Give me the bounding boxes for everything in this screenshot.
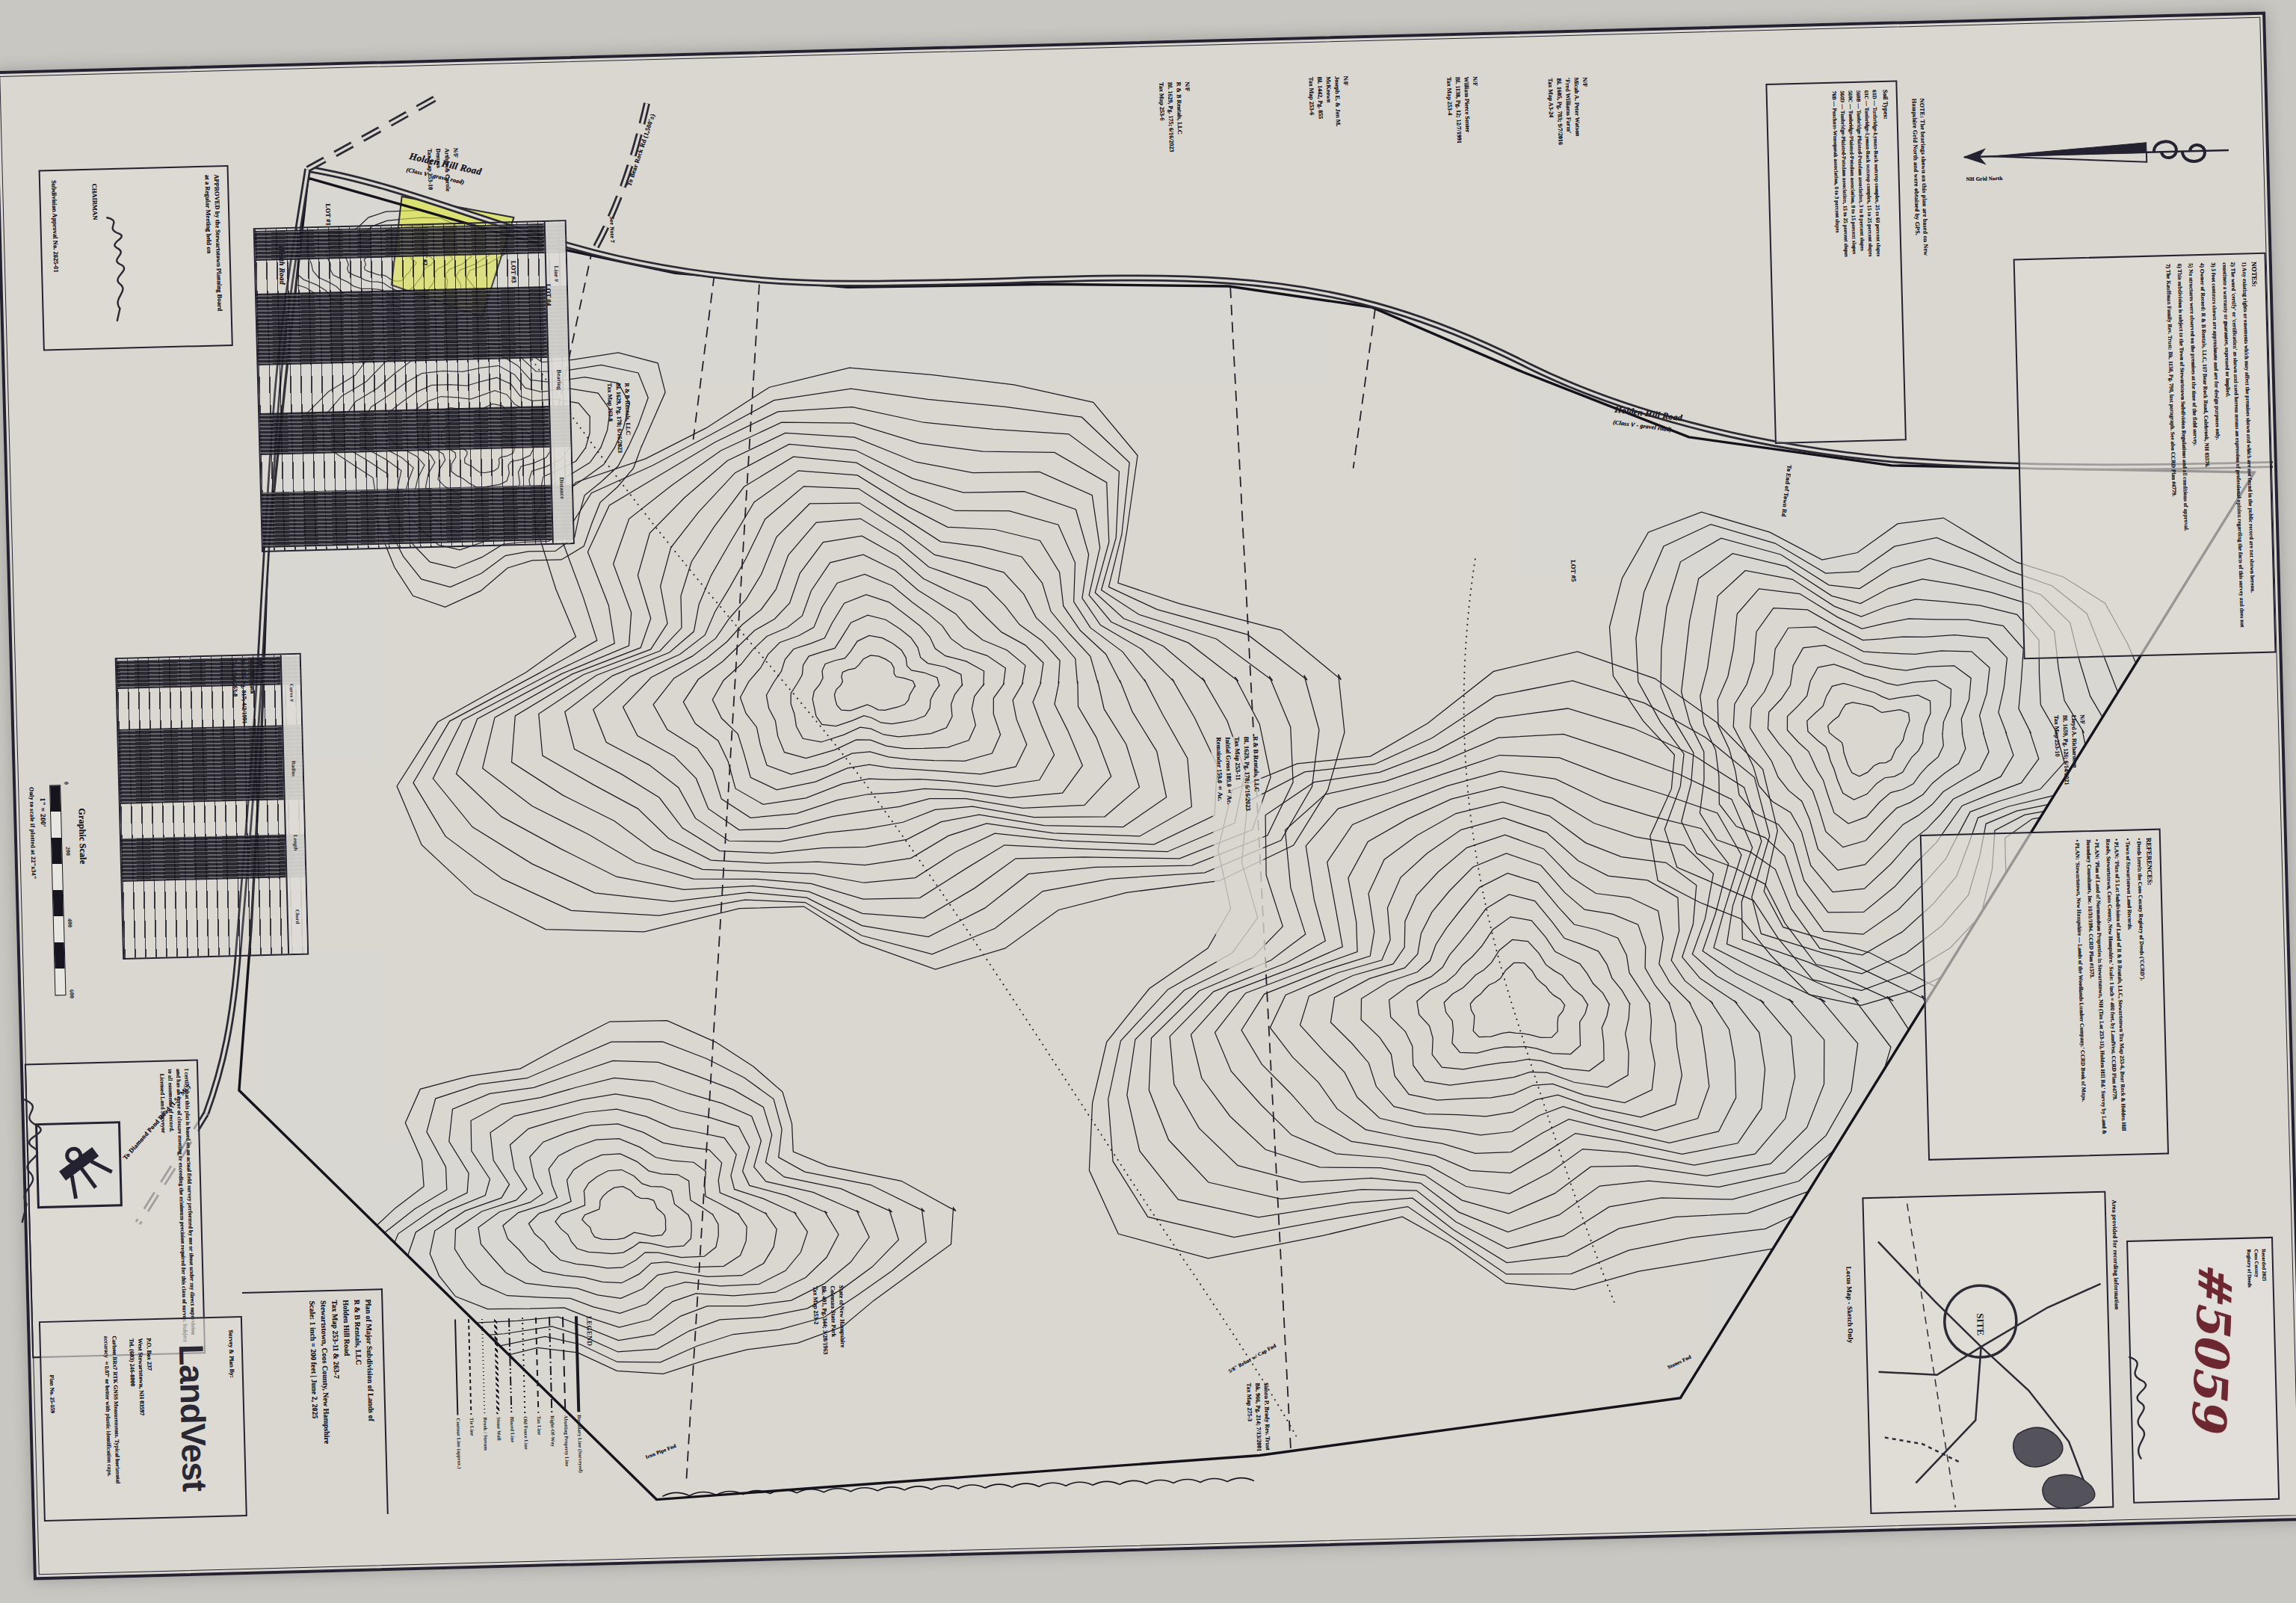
marker-iron-pipe: Iron Pipe Fnd [645,1443,677,1461]
landvest-logo: LandVest [170,1326,215,1509]
legend-item-label: Blazed Line [509,1417,515,1443]
legend-line-sample [575,1316,580,1412]
abutter-senter: N/FWilliam Pierce SenterBl. 1138, Pg. 12… [1440,76,1484,286]
legend-item-label: Right-Of-Way [549,1415,555,1447]
locus-map-sketch: SITE [1863,1193,2112,1513]
curve-table-header: Radius [290,761,297,776]
soils-rows: 61D — Tunbridge-Lyman-Rock outcrop compl… [1778,90,1887,430]
legend-item-label: Brook / Stream [482,1417,488,1450]
approval-number: Subdivision Approval No. 2025-01 [49,180,63,341]
abutter-brady-trust: Simon P. Brady Rev. TrustBk. 966, Pg. 21… [1239,1383,1274,1533]
recording-box: Recorded 2025Coos CountyRegistry of Deed… [2126,1237,2280,1504]
abutter-watson: N/FMicah A. Peter Watson'Fred Williams F… [1541,77,1595,303]
scale-tick: 0 [63,782,70,785]
legend-line-sample [522,1318,526,1413]
abutter-mckeown: N/FJoseph E. & Jen M.McKeownBl. 1442, Pg… [1302,76,1355,287]
abutter-richardson: N/FLloyd A. RichardsonBl. 1659, Pg. 126;… [2048,714,2091,880]
legend-item-label: Old Fence Line [522,1416,528,1450]
legend-line-sample [454,1320,458,1415]
registrar-signature [2116,1353,2156,1466]
scale-tick: 600 [68,989,75,998]
recording-number: #5059 [2179,1261,2243,1480]
lot-label-5: LOT #5 [1569,560,1578,612]
legend-item: Boundary Line (Surveyed) [571,1316,587,1504]
road-label-bear-rock: To Bear Rock Rd (1,500'±) [625,113,657,188]
road-label-holden-2: Holden Hill Road (Class V - gravel road) [1612,404,1683,436]
recording-stamp: Recorded 2025Coos CountyRegistry of Deed… [2245,1249,2273,1474]
legend-line-sample [549,1317,553,1412]
survey-by-caption: Survey & Plan By: [226,1329,240,1501]
line-table: Line #BearingDistance [253,220,575,552]
scanned-survey-plan-page: APPROVED by the Stewartstown Planning Bo… [0,0,2296,1603]
road-label-town-end: To End of Town Rd [1774,465,1793,569]
curve-table-header: Length [292,835,299,851]
legend-item: Abutting Property Line [558,1317,573,1505]
curve-table-header: Curve # [288,684,295,702]
legend-title: LEGEND [585,1316,598,1504]
lot-label-2: LOT #2 [420,244,430,296]
plan-number: Plan No. 25-059 [48,1375,60,1510]
curve-table: Curve #RadiusLengthChord [115,653,309,960]
legend-item: Brook / Stream [477,1318,493,1507]
scale-tick: 400 [67,918,73,927]
legend-items: Boundary Line (Surveyed) Abutting Proper… [450,1316,587,1508]
line-table-header: Line # [553,265,561,282]
plan-title-block: Plan of Major Subdivision of Lands ofR &… [242,1288,389,1518]
scale-ratio: 1" = 200' [38,798,51,918]
legend-item-label: Stone Wall [496,1417,502,1441]
scale-title: Graphic Scale [75,808,91,957]
legend-item-label: Tax Line [536,1416,541,1436]
graphic-scale: Only to scale if plotted at 22"x34" 1" =… [26,755,115,1026]
legend-item: Contour Line (approx.) [450,1319,466,1507]
surveyor-certification-box: I certify that this plat is based on an … [25,1059,206,1358]
legend-item-label: Contour Line (approx.) [455,1418,462,1468]
landvest-block: Survey & Plan By: LandVest P.O. Box 237W… [39,1316,247,1522]
references-list: REFERENCES: • Deeds herein the Coos Coun… [1929,838,2161,1146]
soil-types-box: Soil Types: 61D — Tunbridge-Lyman-Rock o… [1765,80,1907,443]
chairman-label: CHAIRMAN [90,184,103,333]
legend-item: Stone Wall [490,1318,506,1507]
line-table-header: Bearing [555,369,563,389]
legend-item-label: Boundary Line (Surveyed) [576,1415,583,1473]
legend-item-label: Tie Line [469,1418,474,1436]
lot-label-4: LOT #4 [544,284,554,336]
notes-box: NOTES: 1) Any existing rights or easemen… [2013,253,2277,660]
grid-north-note: NOTE: The bearings shown on this plan ar… [1903,99,1930,271]
marker-rebar: 5/8" Rebar w/ Cap Fnd [1227,1342,1277,1374]
plan-title-lines: Plan of Major Subdivision of Lands ofR &… [306,1299,379,1508]
marker-stones: Stones Fnd [1667,1354,1693,1371]
landvest-address: P.O. Box 237West Stewartstown, NH 03597T… [127,1338,157,1499]
equipment-note: Carlson BRx7 RTK GNSS Measurements. Typi… [102,1335,123,1504]
lot-label-1: LOT #1 [324,203,333,256]
notes-list: NOTES: 1) Any existing rights or easemen… [2022,262,2268,645]
curve-table-headers: Curve #RadiusLengthChord [280,655,307,954]
line-table-header: Distance [558,477,566,499]
legend-item: Tie Line [463,1319,479,1507]
legend-line-sample [468,1319,472,1415]
surveyor-signature [0,1093,53,1238]
lot-label-3: LOT #3 [509,261,519,313]
legend-item-label: Abutting Property Line [563,1415,570,1467]
north-arrow-label: NH Grid North [1966,176,2003,183]
legend-item: Blazed Line [504,1318,519,1506]
see-note-annotation: See Note 7 [608,216,617,283]
abutter-coleman-state-park: State of New HampshireColeman State Park… [806,1285,850,1465]
locus-caption: Locus Map - Sketch Only [1844,1267,1857,1446]
abutter-ronald-heath: N/FRonald HeathBk. 775, Pg. 817; 4/2/199… [226,658,268,815]
planning-board-approval-box: APPROVED by the Stewartstown Planning Bo… [39,165,233,351]
parcel-rnb-263-8: R & B Rentals, LLCBl. 1629, Pg. 178; 6/1… [599,383,635,548]
parcel-owner-block: R & B Rentals, LLCBl. 1629, Pg. 178; 6/1… [1211,736,1266,969]
scale-tick: 200 [64,847,71,856]
plan-sheet: APPROVED by the Stewartstown Planning Bo… [0,12,2296,1581]
abutter-rnb-253-6: N/FR & B Rentals, LLCBl. 1629, Pg. 175; … [1152,81,1197,306]
curve-table-header: Chord [294,909,301,924]
locus-map-box: SITE [1862,1191,2114,1514]
legend-line-sample [508,1318,513,1414]
legend: LEGEND Boundary Line (Surveyed) Abutting… [450,1316,598,1508]
legend-line-sample [494,1318,499,1414]
legend-line-sample [562,1317,567,1412]
references-box: REFERENCES: • Deeds herein the Coos Coun… [1920,829,2169,1161]
legend-line-sample [481,1319,486,1415]
legend-item: Tax Line [531,1318,546,1506]
locus-site-text: SITE [1975,1313,1987,1335]
legend-item: Old Fence Line [517,1318,533,1506]
legend-item: Right-Of-Way [544,1317,560,1505]
legend-line-sample [535,1318,540,1413]
